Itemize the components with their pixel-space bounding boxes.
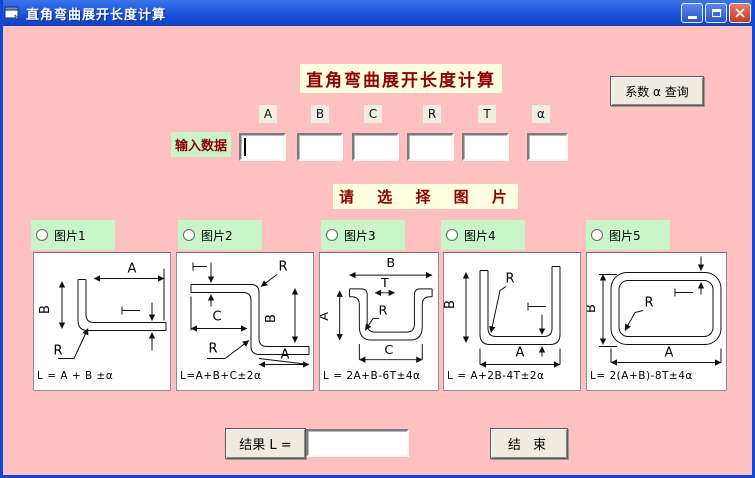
formula-label: L=A+B+C±2α xyxy=(177,370,313,390)
dim-label-r1: R xyxy=(278,260,287,275)
dim-label-b: B xyxy=(587,304,599,313)
bend-diagram-z-shape: R C B R A xyxy=(177,253,313,370)
bend-diagram-l-shape: A B R xyxy=(34,253,170,370)
dim-label-b: B xyxy=(38,305,53,314)
dim-label-r: R xyxy=(644,296,653,311)
field-label-alpha: α xyxy=(532,105,550,123)
picture-panel-1[interactable]: A B R L = A + B ±α xyxy=(33,252,171,391)
app-window: 直角弯曲展开长度计算 直角弯曲展开长度计算 系数 α 查询 A B C R T … xyxy=(0,0,755,478)
dim-label-a: A xyxy=(320,312,332,321)
close-button[interactable] xyxy=(729,3,751,23)
dim-label-a: A xyxy=(281,348,290,363)
field-label-t: T xyxy=(478,105,496,123)
dim-label-a: A xyxy=(128,262,137,277)
radio-icon[interactable] xyxy=(36,229,48,241)
text-caret xyxy=(244,138,246,156)
window-title: 直角弯曲展开长度计算 xyxy=(26,4,166,23)
radio-label: 图片5 xyxy=(609,227,641,244)
minimize-icon xyxy=(688,16,697,19)
input-field-t[interactable] xyxy=(462,133,509,161)
radio-label: 图片3 xyxy=(344,227,376,244)
formula-label: L = 2A+B-6T±4α xyxy=(320,370,438,390)
input-data-label: 输入数据 xyxy=(171,132,231,157)
dim-label-t: T xyxy=(380,276,389,291)
formula-label: L = A+2B-4T±2α xyxy=(444,370,580,390)
radio-option-picture1[interactable]: 图片1 xyxy=(31,220,115,250)
radio-icon[interactable] xyxy=(326,229,338,241)
dim-label-r: R xyxy=(53,344,62,359)
bend-diagram-u-shape: B R A xyxy=(444,253,580,370)
maximize-button[interactable] xyxy=(705,3,727,23)
formula-label: L = A + B ±α xyxy=(34,370,170,390)
bend-diagram-closed-tube: B R A xyxy=(587,253,726,370)
input-field-b[interactable] xyxy=(297,133,343,161)
dim-label-r: R xyxy=(378,303,387,318)
picture-panel-2[interactable]: R C B R A L=A+B+C±2α xyxy=(176,252,314,391)
radio-label: 图片2 xyxy=(201,227,233,244)
dim-label-c: C xyxy=(212,310,221,325)
dim-label-r: R xyxy=(505,272,514,287)
page-title: 直角弯曲展开长度计算 xyxy=(300,64,502,93)
input-field-c[interactable] xyxy=(352,133,399,161)
titlebar: 直角弯曲展开长度计算 xyxy=(0,0,755,26)
form-icon xyxy=(4,6,20,20)
radio-option-picture5[interactable]: 图片5 xyxy=(586,220,670,250)
picture-panel-5[interactable]: B R A L= 2(A+B)-8T±4α xyxy=(586,252,727,391)
radio-option-picture2[interactable]: 图片2 xyxy=(178,220,262,250)
window-controls xyxy=(681,3,751,23)
input-field-a[interactable] xyxy=(239,133,286,161)
field-label-b: B xyxy=(311,105,329,123)
input-field-alpha[interactable] xyxy=(527,133,568,161)
dim-label-a: A xyxy=(516,346,525,361)
close-icon xyxy=(735,8,745,18)
radio-icon[interactable] xyxy=(183,229,195,241)
radio-option-picture3[interactable]: 图片3 xyxy=(321,220,405,250)
bend-diagram-channel: B T R A C xyxy=(320,253,438,370)
formula-label: L= 2(A+B)-8T±4α xyxy=(587,370,726,390)
dim-label-b: B xyxy=(264,314,279,323)
end-button[interactable]: 结 束 xyxy=(490,428,568,459)
field-label-r: R xyxy=(423,105,441,123)
field-label-a: A xyxy=(259,105,277,123)
dim-label-a: A xyxy=(665,346,674,361)
maximize-icon xyxy=(712,9,721,17)
coefficient-lookup-button[interactable]: 系数 α 查询 xyxy=(610,76,704,106)
input-field-r[interactable] xyxy=(407,133,454,161)
radio-option-picture4[interactable]: 图片4 xyxy=(441,220,525,250)
picture-panel-4[interactable]: B R A L = A+2B-4T±2α xyxy=(443,252,581,391)
radio-icon[interactable] xyxy=(591,229,603,241)
dim-label-b: B xyxy=(386,256,395,271)
picture-panel-3[interactable]: B T R A C L = 2A+B-6T±4α xyxy=(319,252,439,391)
minimize-button[interactable] xyxy=(681,3,703,23)
dim-label-r2: R xyxy=(208,342,217,357)
dim-label-b: B xyxy=(444,300,458,309)
picker-heading: 请 选 择 图 片 xyxy=(333,184,518,209)
dim-label-c: C xyxy=(384,343,393,358)
radio-label: 图片4 xyxy=(464,227,496,244)
radio-label: 图片1 xyxy=(54,227,86,244)
radio-icon[interactable] xyxy=(446,229,458,241)
result-input[interactable] xyxy=(306,429,409,457)
field-label-c: C xyxy=(364,105,382,123)
result-button[interactable]: 结果 L = xyxy=(225,428,306,459)
